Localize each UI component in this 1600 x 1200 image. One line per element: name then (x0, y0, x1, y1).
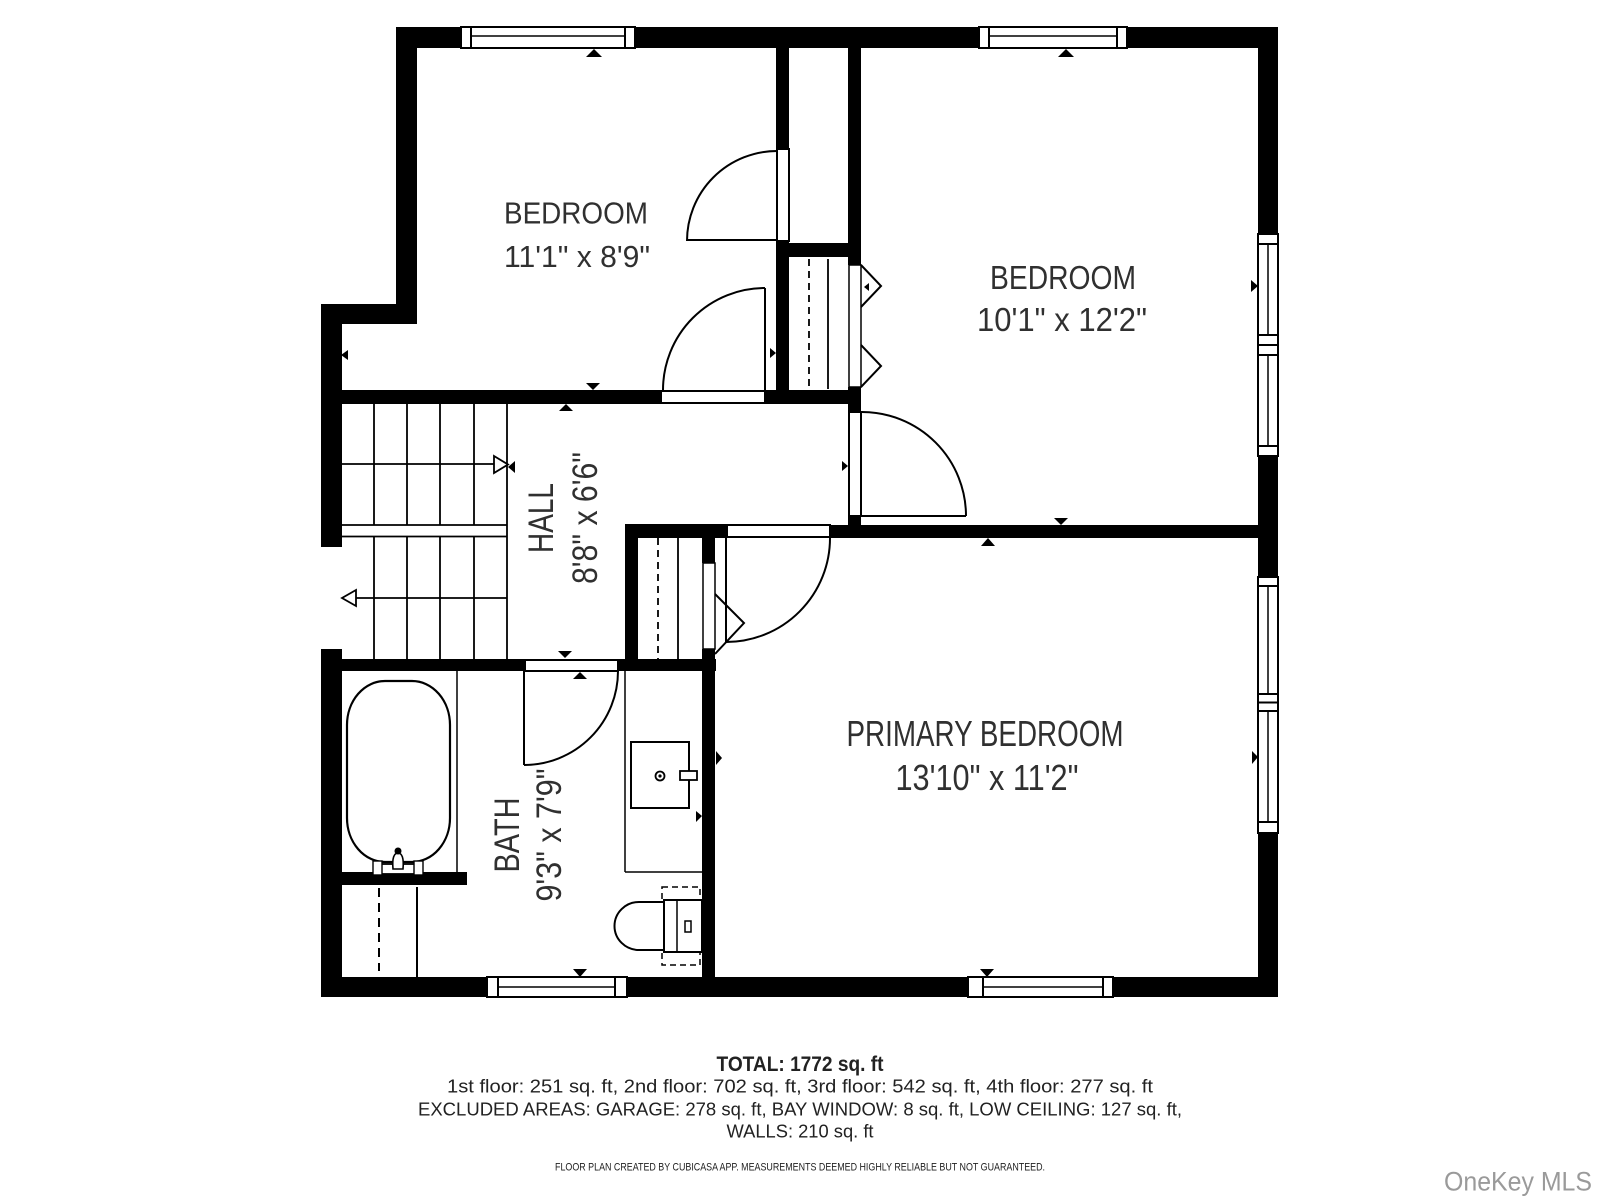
svg-text:TOTAL: 1772 sq. ft: TOTAL: 1772 sq. ft (717, 1053, 884, 1076)
svg-text:13'10" x 11'2": 13'10" x 11'2" (896, 757, 1079, 798)
svg-text:BEDROOM: BEDROOM (504, 196, 648, 231)
svg-text:8'8" x 6'6": 8'8" x 6'6" (566, 452, 605, 584)
svg-text:HALL: HALL (522, 483, 561, 553)
svg-text:9'3" x 7'9": 9'3" x 7'9" (530, 769, 569, 902)
svg-text:OneKey MLS: OneKey MLS (1444, 1167, 1592, 1197)
svg-text:1st floor: 251 sq. ft, 2nd flo: 1st floor: 251 sq. ft, 2nd floor: 702 sq… (447, 1077, 1153, 1097)
svg-text:BATH: BATH (488, 798, 527, 873)
svg-text:10'1" x 12'2": 10'1" x 12'2" (977, 301, 1147, 338)
svg-text:WALLS: 210 sq. ft: WALLS: 210 sq. ft (727, 1122, 874, 1142)
svg-text:FLOOR PLAN CREATED BY CUBICASA: FLOOR PLAN CREATED BY CUBICASA APP. MEAS… (555, 1162, 1045, 1174)
svg-text:11'1" x 8'9": 11'1" x 8'9" (504, 239, 650, 274)
svg-text:EXCLUDED AREAS: GARAGE: 278 sq: EXCLUDED AREAS: GARAGE: 278 sq. ft, BAY … (418, 1100, 1182, 1120)
svg-text:BEDROOM: BEDROOM (990, 259, 1136, 296)
svg-text:PRIMARY BEDROOM: PRIMARY BEDROOM (847, 713, 1124, 754)
